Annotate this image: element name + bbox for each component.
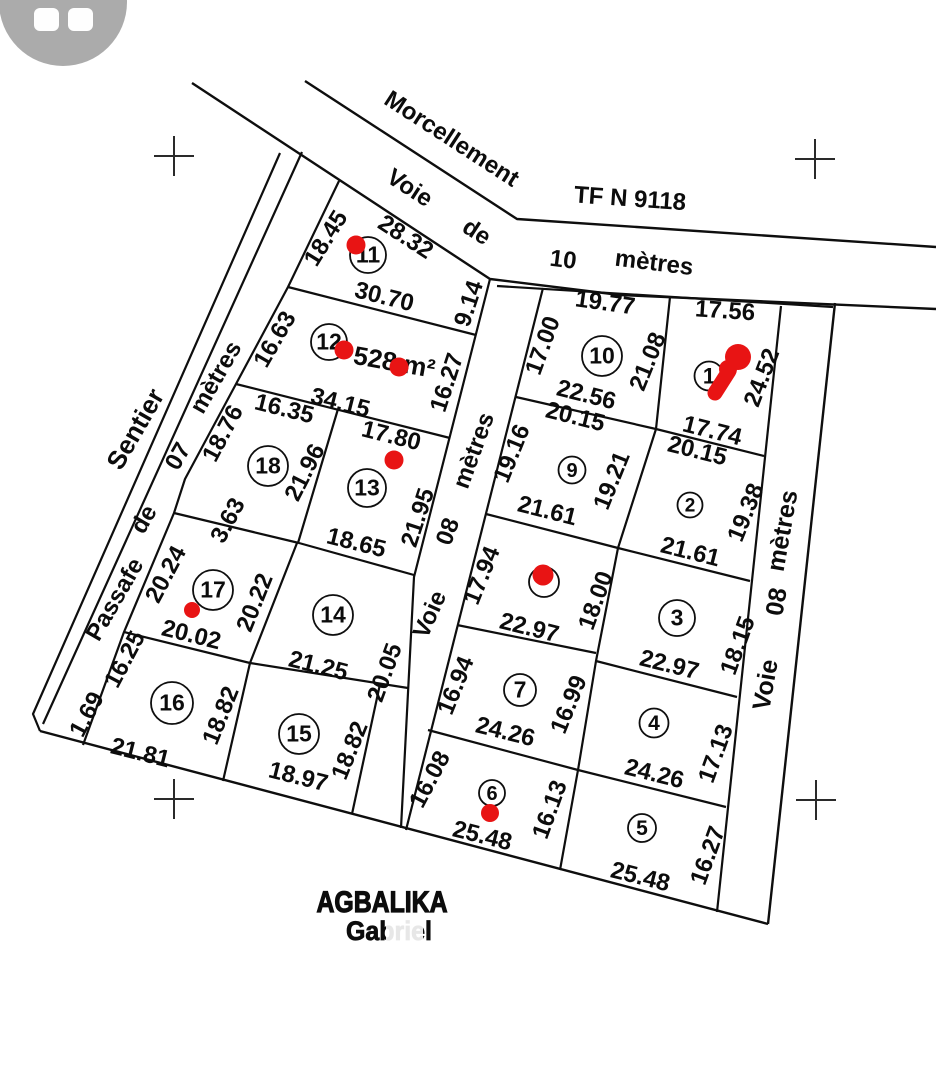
svg-text:14: 14 [320, 602, 346, 628]
svg-text:5: 5 [636, 817, 648, 840]
svg-text:10: 10 [548, 245, 578, 275]
svg-text:7: 7 [514, 677, 527, 703]
svg-text:6: 6 [486, 783, 497, 805]
svg-text:10: 10 [589, 343, 615, 369]
svg-text:16: 16 [159, 690, 185, 716]
svg-text:18: 18 [255, 453, 281, 479]
svg-text:15: 15 [286, 721, 312, 747]
svg-text:08: 08 [760, 586, 792, 618]
svg-text:13: 13 [354, 475, 380, 501]
svg-text:AGBALIKA: AGBALIKA [317, 886, 448, 919]
svg-text:17.56: 17.56 [694, 295, 756, 326]
svg-text:17: 17 [200, 577, 226, 603]
svg-text:9: 9 [566, 460, 577, 482]
svg-text:3: 3 [671, 605, 684, 631]
svg-text:4: 4 [648, 712, 660, 735]
svg-text:2: 2 [685, 496, 696, 517]
